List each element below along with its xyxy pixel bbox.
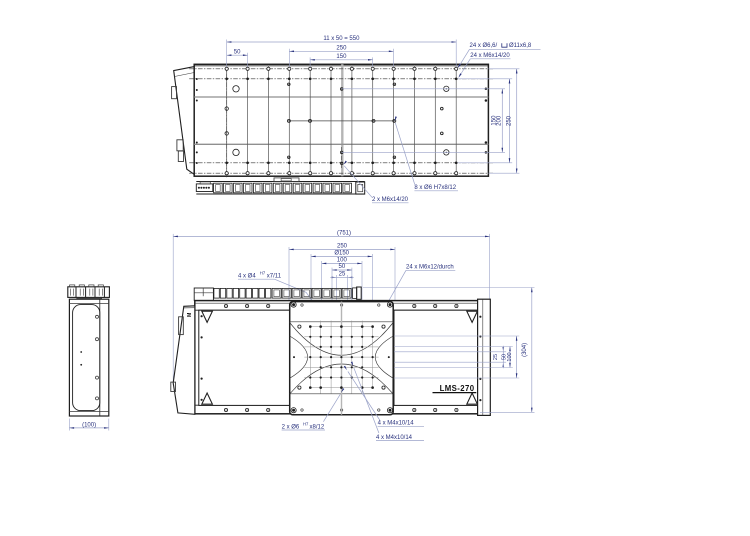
svg-text:(751): (751) — [337, 231, 351, 237]
svg-text:H7: H7 — [303, 421, 309, 426]
svg-text:50: 50 — [339, 264, 346, 270]
svg-text:(304): (304) — [522, 343, 528, 357]
svg-text:11 x 50 = 550: 11 x 50 = 550 — [323, 36, 360, 42]
svg-text:LMS-270: LMS-270 — [440, 384, 475, 393]
svg-text:4 x M4x10/14: 4 x M4x10/14 — [376, 435, 413, 441]
svg-text:2 x M6x14/20: 2 x M6x14/20 — [372, 197, 409, 203]
svg-text:4 x M4x10/14: 4 x M4x10/14 — [378, 421, 415, 427]
svg-text:25: 25 — [493, 354, 499, 360]
svg-text:200: 200 — [497, 115, 503, 126]
svg-text:M: M — [187, 313, 193, 317]
svg-text:Ø11x6,8: Ø11x6,8 — [509, 43, 532, 49]
svg-text:2 x Ø6: 2 x Ø6 — [282, 424, 300, 430]
svg-text:100: 100 — [337, 258, 348, 264]
svg-text:150: 150 — [336, 54, 347, 60]
svg-text:24 x M6x14/20: 24 x M6x14/20 — [470, 53, 510, 59]
svg-text:250: 250 — [506, 115, 512, 126]
svg-text:x8/12: x8/12 — [310, 424, 325, 430]
svg-text:24 x Ø6,6/: 24 x Ø6,6/ — [470, 43, 498, 49]
svg-text:250: 250 — [337, 244, 348, 250]
svg-text:25: 25 — [339, 272, 346, 278]
svg-text:(100): (100) — [82, 423, 96, 429]
svg-text:24 x M6x12/durch: 24 x M6x12/durch — [406, 265, 454, 271]
svg-text:100: 100 — [507, 352, 513, 361]
svg-text:H7: H7 — [260, 270, 266, 275]
svg-text:x7/11: x7/11 — [267, 274, 282, 280]
svg-text:250: 250 — [336, 46, 347, 52]
svg-text:Ø150: Ø150 — [334, 251, 349, 257]
svg-text:50: 50 — [234, 49, 241, 55]
svg-text:8 x Ø6 H7x8/12: 8 x Ø6 H7x8/12 — [414, 185, 456, 191]
svg-text:4 x Ø4: 4 x Ø4 — [238, 274, 256, 280]
